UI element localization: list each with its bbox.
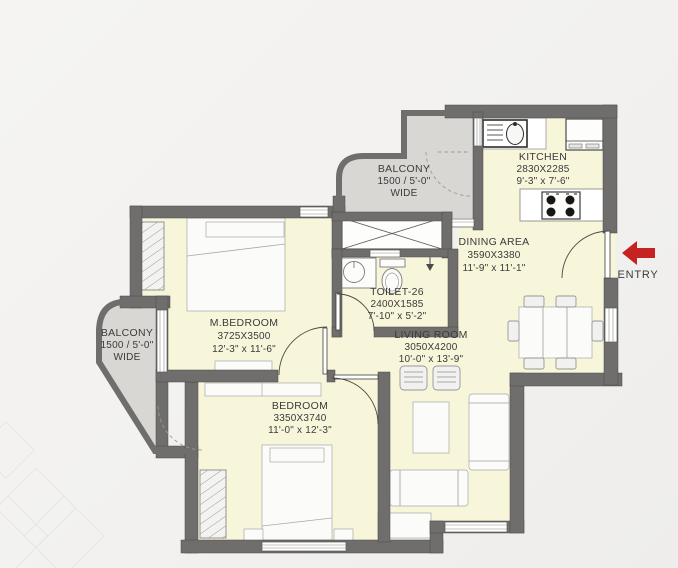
wall bbox=[448, 249, 458, 337]
svg-text:BALCONY: BALCONY bbox=[101, 327, 153, 339]
svg-text:DINING AREA: DINING AREA bbox=[459, 236, 530, 248]
svg-text:9'-3" x 7'-6": 9'-3" x 7'-6" bbox=[517, 176, 570, 187]
svg-text:3350X3740: 3350X3740 bbox=[274, 413, 327, 424]
dining-chair bbox=[556, 296, 576, 307]
dining-chair bbox=[556, 358, 576, 369]
svg-text:3725X3500: 3725X3500 bbox=[218, 331, 271, 342]
window bbox=[370, 250, 400, 257]
svg-text:3590X3380: 3590X3380 bbox=[468, 250, 521, 261]
wardrobe-bedroom bbox=[200, 470, 226, 538]
window bbox=[445, 522, 507, 532]
entry-arrow-icon bbox=[622, 241, 655, 265]
window bbox=[300, 207, 328, 217]
wall bbox=[445, 105, 617, 118]
svg-text:12'-3" x 11'-6": 12'-3" x 11'-6" bbox=[212, 344, 276, 355]
wall bbox=[332, 212, 452, 221]
background-watermark bbox=[0, 422, 104, 568]
svg-text:2830X2285: 2830X2285 bbox=[517, 164, 570, 175]
sofa-three-seat bbox=[390, 470, 468, 506]
dining-chair bbox=[508, 321, 519, 341]
svg-text:10'-0" x 13'-9": 10'-0" x 13'-9" bbox=[399, 354, 464, 365]
dining-chair bbox=[524, 358, 544, 369]
svg-text:BALCONY: BALCONY bbox=[378, 163, 430, 175]
svg-text:7'-10" x 5'-2": 7'-10" x 5'-2" bbox=[368, 311, 427, 322]
label-toilet: TOILET-26 2400X1585 7'-10" x 5'-2" bbox=[368, 286, 427, 322]
dining-chair bbox=[524, 296, 544, 307]
svg-text:WIDE: WIDE bbox=[391, 188, 418, 199]
dresser-bedroom bbox=[205, 383, 321, 396]
kitchen-sink-counter bbox=[480, 118, 546, 149]
wall bbox=[378, 372, 390, 542]
armchair bbox=[433, 366, 460, 390]
wall bbox=[130, 206, 142, 308]
svg-text:11'-9" x 11'-1": 11'-9" x 11'-1" bbox=[462, 263, 525, 274]
svg-text:11'-0" x 12'-3": 11'-0" x 12'-3" bbox=[268, 425, 332, 436]
floor-plan-page: BALCONY 1500 / 5'-0" WIDE KITCHEN 2830X2… bbox=[0, 0, 678, 568]
svg-text:WIDE: WIDE bbox=[114, 352, 141, 363]
label-dining: DINING AREA 3590X3380 11'-9" x 11'-1" bbox=[459, 236, 530, 274]
kitchen-fridge bbox=[566, 119, 603, 150]
wall bbox=[185, 382, 198, 553]
dresser-master bbox=[215, 361, 272, 371]
floor-plan: BALCONY 1500 / 5'-0" WIDE KITCHEN 2830X2… bbox=[0, 0, 678, 568]
window bbox=[605, 308, 617, 342]
kitchen-hob-counter bbox=[520, 189, 604, 221]
sofa-two-seat bbox=[469, 394, 509, 470]
svg-text:M.BEDROOM: M.BEDROOM bbox=[210, 317, 279, 329]
window bbox=[262, 542, 346, 551]
svg-text:BEDROOM: BEDROOM bbox=[272, 400, 328, 412]
wall bbox=[603, 105, 617, 233]
svg-text:LIVING ROOM: LIVING ROOM bbox=[394, 329, 467, 341]
window bbox=[157, 310, 167, 372]
svg-text:1500 / 5'-0": 1500 / 5'-0" bbox=[101, 340, 154, 351]
svg-text:KITCHEN: KITCHEN bbox=[519, 151, 567, 163]
window bbox=[452, 219, 474, 227]
wall bbox=[510, 373, 524, 533]
wall bbox=[156, 370, 278, 382]
entry-marker: ENTRY bbox=[617, 241, 658, 281]
svg-text:TOILET-26: TOILET-26 bbox=[370, 286, 424, 298]
label-bedroom: BEDROOM 3350X3740 11'-0" x 12'-3" bbox=[268, 400, 332, 436]
dining-table bbox=[508, 296, 603, 369]
armchair bbox=[400, 366, 427, 390]
window bbox=[474, 118, 482, 146]
dining-chair bbox=[592, 321, 603, 341]
service-shaft bbox=[342, 218, 442, 249]
label-kitchen: KITCHEN 2830X2285 9'-3" x 7'-6" bbox=[517, 151, 570, 187]
svg-text:2400X1585: 2400X1585 bbox=[371, 299, 424, 310]
svg-text:1500 / 5'-0": 1500 / 5'-0" bbox=[378, 176, 431, 187]
label-living: LIVING ROOM 3050X4200 10'-0" x 13'-9" bbox=[394, 329, 467, 365]
svg-text:3050X4200: 3050X4200 bbox=[405, 342, 458, 353]
label-master-bedroom: M.BEDROOM 3725X3500 12'-3" x 11'-6" bbox=[210, 317, 279, 355]
entry-label: ENTRY bbox=[617, 269, 658, 281]
bed-master bbox=[187, 218, 285, 311]
coffee-table bbox=[413, 402, 449, 453]
